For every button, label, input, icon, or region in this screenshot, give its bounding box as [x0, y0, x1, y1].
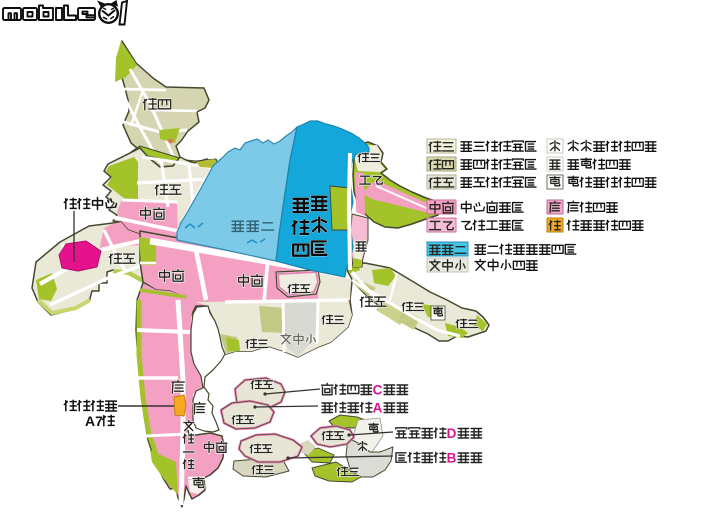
svg-text:A: A [373, 401, 383, 416]
svg-text:A7: A7 [85, 413, 103, 429]
svg-text:C: C [373, 383, 383, 398]
svg-text:D: D [447, 426, 457, 441]
svg-text:B: B [447, 451, 457, 466]
